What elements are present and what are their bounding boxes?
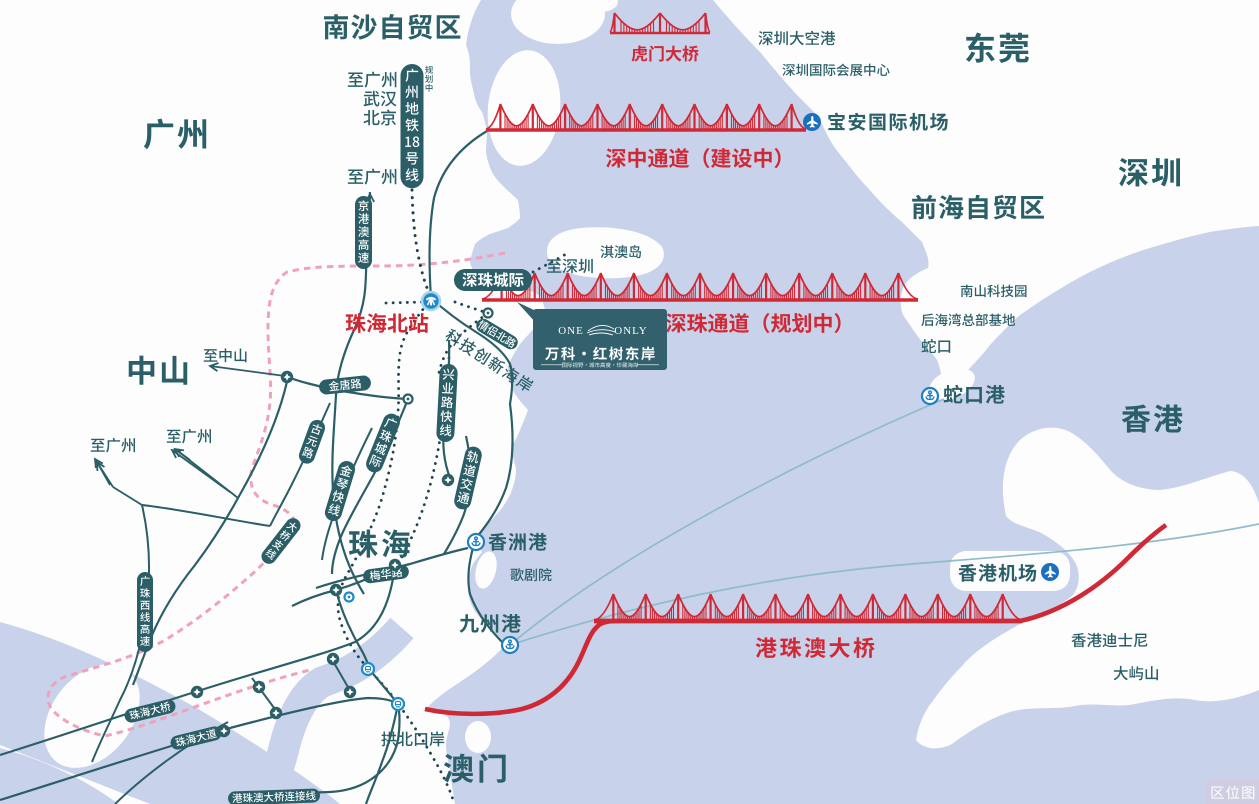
svg-text:ONLY: ONLY (614, 325, 647, 337)
svg-text:ONE: ONE (558, 325, 584, 337)
